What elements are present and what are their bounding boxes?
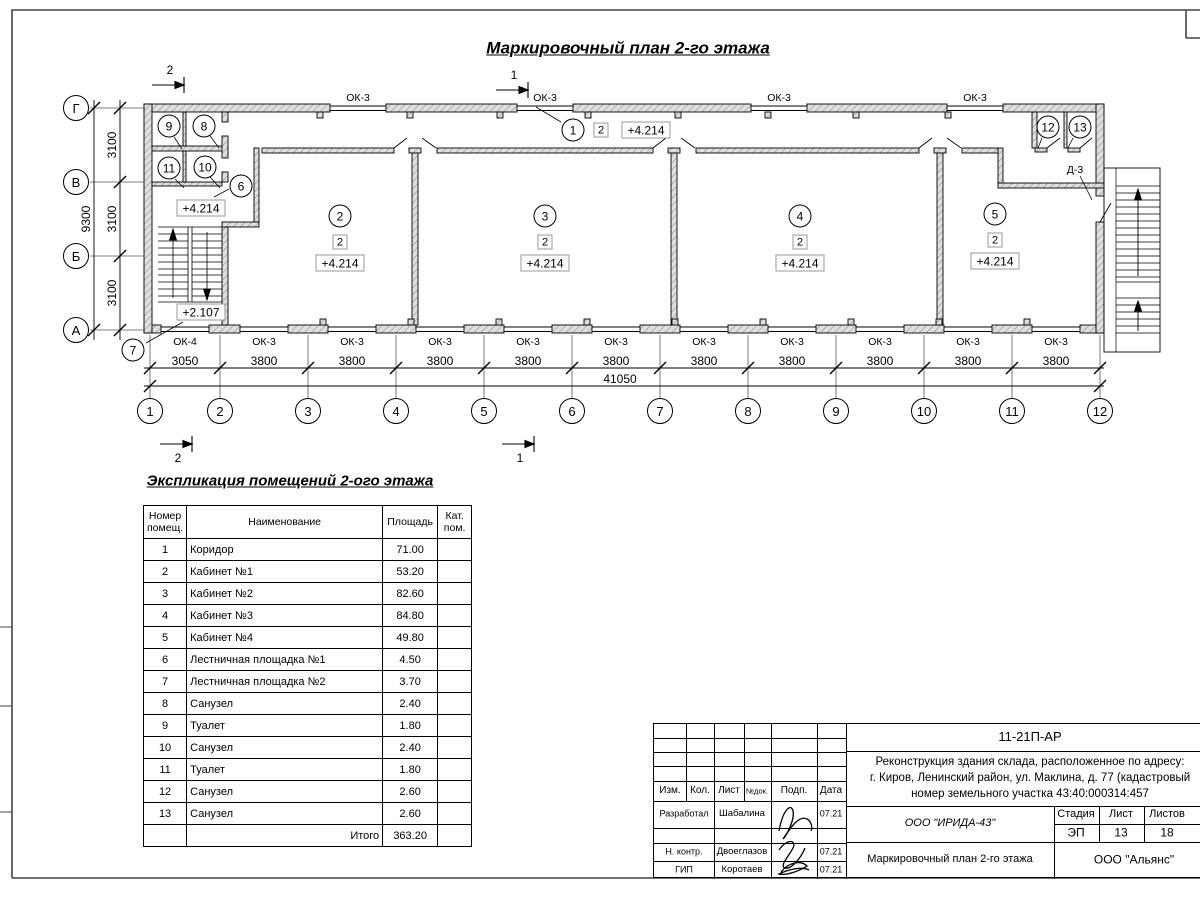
section-mark-2-top: 2	[167, 64, 174, 76]
window-tag: ОК-3	[780, 337, 804, 348]
window-tag: ОК-3	[767, 93, 791, 104]
total-value: 363.20	[383, 825, 438, 847]
room-number: 11	[158, 157, 181, 180]
axis-bubble: 3	[295, 398, 321, 424]
axis-bubble: 11	[999, 398, 1025, 424]
tb-col-izm: Изм.	[659, 785, 680, 798]
room-category: 2	[333, 235, 348, 250]
table-row: 8Санузел2.40	[144, 693, 472, 715]
tb-role: ГИП	[675, 864, 693, 875]
signature-dvoeglazov	[771, 836, 816, 878]
table-row: 9Туалет1.80	[144, 715, 472, 737]
total-label: Итого	[187, 825, 383, 847]
window-tag: ОК-3	[340, 337, 364, 348]
room-number: 2	[329, 205, 352, 228]
tb-col-data: Дата	[820, 785, 842, 798]
explication-title: Экспликация помещений 2-ого этажа	[147, 474, 434, 489]
tb-role: Разработал	[660, 808, 709, 819]
stairs-right	[1104, 168, 1160, 352]
room-elevation: +4.214	[520, 255, 569, 272]
dim-label: 3800	[955, 355, 982, 367]
section-mark-1-top: 1	[511, 69, 518, 81]
table-row: 2Кабинет №153.20	[144, 561, 472, 583]
window-tag: ОК-3	[428, 337, 452, 348]
tb-date: 07.21	[820, 864, 843, 875]
elevation-mark: +2.107	[176, 304, 225, 321]
window-tag: ОК-3	[252, 337, 276, 348]
leader-lines	[146, 107, 1092, 343]
room-number: 13	[1069, 116, 1092, 139]
axis-bubble: 2	[207, 398, 233, 424]
tb-project-line: г. Киров, Ленинский район, ул. Маклина, …	[870, 771, 1190, 785]
room-number: 7	[122, 339, 145, 362]
tb-stage-val: ЭП	[1067, 826, 1084, 841]
window-tag: ОК-3	[868, 337, 892, 348]
tb-name: Двоеглазов	[717, 846, 768, 858]
dim-label: 3800	[251, 355, 278, 367]
table-row: 1Коридор71.00	[144, 539, 472, 561]
tb-name: Шабалина	[719, 808, 765, 820]
axis-bubble: 7	[647, 398, 673, 424]
tb-date: 07.21	[820, 846, 843, 857]
axis-bubble: Б	[63, 243, 89, 269]
axis-bubble: 12	[1087, 398, 1113, 424]
dim-label: 3800	[867, 355, 894, 367]
signature-shabalina	[773, 801, 818, 841]
col-header-cat: Кат.пом.	[438, 506, 472, 539]
tb-contractor: ООО "Альянс"	[1094, 853, 1174, 868]
dim-label: 3800	[515, 355, 542, 367]
window-tag: ОК-3	[516, 337, 540, 348]
tb-name: Коротаев	[721, 864, 762, 876]
axis-bubble: В	[63, 169, 89, 195]
dim-label: 3800	[691, 355, 718, 367]
table-row: 5Кабинет №449.80	[144, 627, 472, 649]
axis-bubble: 4	[383, 398, 409, 424]
room-category: 2	[594, 123, 609, 138]
window-tag: ОК-3	[963, 93, 987, 104]
window-tag: ОК-3	[604, 337, 628, 348]
col-header-area: Площадь	[383, 506, 438, 539]
dim-label: 3800	[779, 355, 806, 367]
tb-col-podp: Подп.	[781, 785, 808, 798]
table-row: 3Кабинет №282.60	[144, 583, 472, 605]
table-row: 12Санузел2.60	[144, 781, 472, 803]
dim-label: 3100	[106, 132, 118, 159]
table-row: 7Лестничная площадка №23.70	[144, 671, 472, 693]
room-number: 6	[230, 175, 253, 198]
dim-total-label: 9300	[80, 206, 92, 233]
tb-doc-title: Маркировочный план 2-го этажа	[867, 853, 1032, 867]
tb-stage-col: Лист	[1109, 808, 1133, 822]
room-elevation: +4.214	[621, 122, 670, 139]
axis-bubble: 8	[735, 398, 761, 424]
stairs-left	[158, 227, 222, 302]
door-tag: Д-3	[1067, 165, 1083, 176]
window-tag: ОК-3	[1044, 337, 1068, 348]
section-mark-2-bottom: 2	[175, 452, 182, 464]
tb-stage-col: Листов	[1149, 808, 1185, 822]
tb-role: Н. контр.	[665, 846, 702, 857]
tb-col-kol: Кол.	[690, 785, 710, 798]
tb-sheet-num: 13	[1114, 826, 1127, 841]
dim-label: 3800	[1043, 355, 1070, 367]
tb-date: 07.21	[820, 808, 843, 819]
room-category: 2	[793, 235, 808, 250]
dim-label: 3800	[603, 355, 630, 367]
drawing-sheet: { "drawing_title": "Маркировочный план 2…	[0, 0, 1200, 900]
table-row: 6Лестничная площадка №14.50	[144, 649, 472, 671]
room-number: 5	[984, 203, 1007, 226]
room-number: 8	[193, 115, 216, 138]
table-header-row: Номерпомещ. Наименование Площадь Кат.пом…	[144, 506, 472, 539]
dim-label: 3800	[339, 355, 366, 367]
axis-bubble: Г	[63, 95, 89, 121]
axis-bubble: 6	[559, 398, 585, 424]
col-header-num: Номерпомещ.	[144, 506, 187, 539]
window-tag: ОК-3	[533, 93, 557, 104]
room-number: 12	[1037, 116, 1060, 139]
dimension-lines	[88, 100, 1106, 392]
dim-label: 3100	[106, 280, 118, 307]
axis-bubble: 10	[911, 398, 937, 424]
elevation-mark: +4.214	[176, 200, 225, 217]
tb-project-line: номер земельного участка 43:40:000314:45…	[911, 787, 1149, 801]
axis-bubble: 1	[137, 398, 163, 424]
room-number: 1	[562, 119, 585, 142]
window-tag: ОК-4	[173, 337, 197, 348]
table-row: 4Кабинет №384.80	[144, 605, 472, 627]
window-tag: ОК-3	[346, 93, 370, 104]
col-header-name: Наименование	[187, 506, 383, 539]
room-category: 2	[988, 233, 1003, 248]
table-row: 11Туалет1.80	[144, 759, 472, 781]
room-elevation: +4.214	[970, 253, 1019, 270]
axis-bubble: 5	[471, 398, 497, 424]
tb-doc-code: 11-21П-АР	[998, 729, 1061, 745]
dim-label: 3050	[172, 355, 199, 367]
title-block: Изм. Кол. Лист №док. Подп. Дата Разработ…	[653, 723, 1200, 878]
axis-bubble: А	[63, 317, 89, 343]
window-tag: ОК-3	[956, 337, 980, 348]
explication-table: Номерпомещ. Наименование Площадь Кат.пом…	[143, 505, 472, 847]
dim-total-label: 41050	[603, 373, 636, 385]
room-category: 2	[538, 235, 553, 250]
room-elevation: +4.214	[775, 255, 824, 272]
table-row: 13Санузел2.60	[144, 803, 472, 825]
room-number: 9	[158, 115, 181, 138]
table-total-row: Итого 363.20	[144, 825, 472, 847]
tb-sheet-count: 18	[1160, 826, 1173, 841]
window-tag: ОК-3	[692, 337, 716, 348]
room-elevation: +4.214	[315, 255, 364, 272]
tb-project-line: Реконструкция здания склада, расположенн…	[875, 755, 1184, 769]
room-number: 3	[534, 205, 557, 228]
dim-label: 3100	[106, 206, 118, 233]
room-number: 10	[194, 156, 217, 179]
tb-stage-col: Стадия	[1057, 808, 1095, 822]
section-mark-1-bottom: 1	[517, 452, 524, 464]
room-number: 4	[789, 205, 812, 228]
tb-col-list: Лист	[718, 785, 740, 798]
axis-bubble: 9	[823, 398, 849, 424]
dim-label: 3800	[427, 355, 454, 367]
table-row: 10Санузел2.40	[144, 737, 472, 759]
tb-col-ndok: №док.	[746, 786, 768, 795]
sheet-title: Маркировочный план 2-го этажа	[486, 40, 770, 57]
tb-org: ООО "ИРИДА-43"	[905, 817, 996, 831]
